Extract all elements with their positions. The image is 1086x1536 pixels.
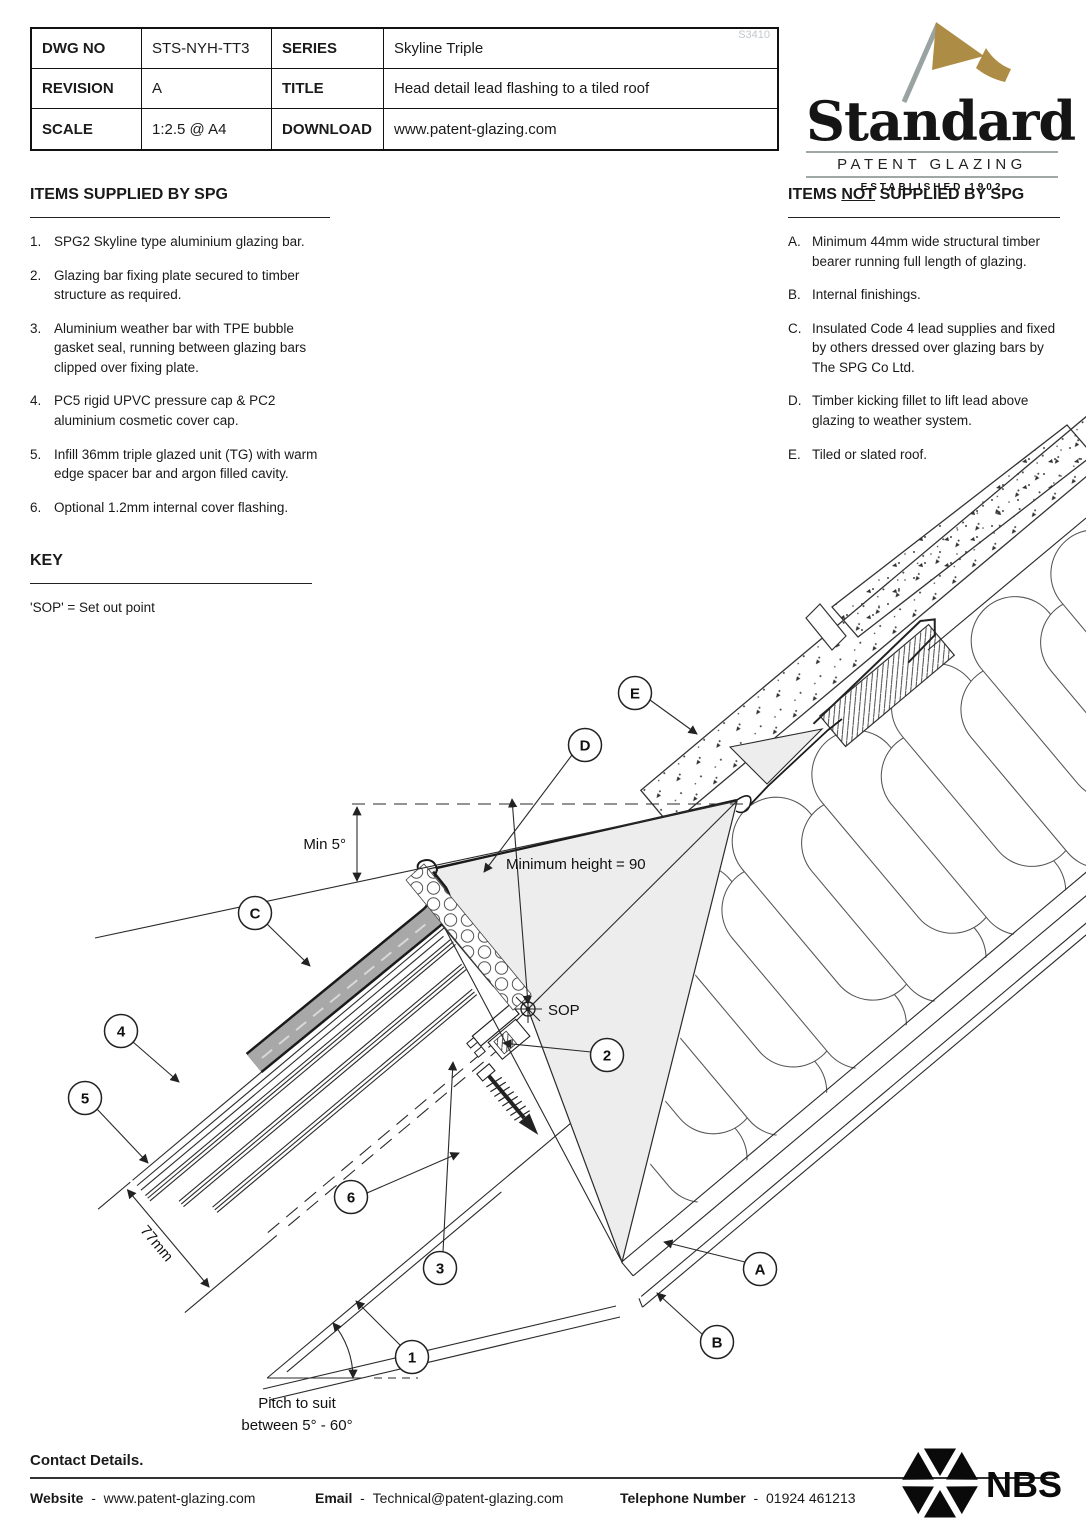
footer-phone: Telephone Number - 01924 461213 xyxy=(620,1490,856,1506)
revision-value: A xyxy=(142,69,272,109)
footer-email: Email - Technical@patent-glazing.com xyxy=(315,1490,563,1506)
title-block-table: DWG NO STS-NYH-TT3 SERIES Skyline Triple… xyxy=(30,27,779,151)
dwg-no-value: STS-NYH-TT3 xyxy=(142,29,272,69)
dimension-min5: Min 5° xyxy=(303,807,357,881)
dimension-77mm: 77mm xyxy=(98,1132,277,1313)
items-supplied-heading: ITEMS SUPPLIED BY SPG xyxy=(30,186,330,218)
download-label: DOWNLOAD xyxy=(272,109,384,149)
callout-4-label: 4 xyxy=(117,1023,126,1040)
pressure-cap xyxy=(133,922,449,1190)
scale-value: 1:2.5 @ A4 xyxy=(142,109,272,149)
items-not-supplied-heading: ITEMS NOT SUPPLIED BY SPG xyxy=(788,186,1060,218)
triple-glazed-unit xyxy=(133,919,498,1244)
footer-website: Website - www.patent-glazing.com xyxy=(30,1490,255,1506)
list-item: 2.Glazing bar fixing plate secured to ti… xyxy=(30,266,330,305)
callout-2-label: 2 xyxy=(603,1047,611,1064)
logo-wordmark: Standard xyxy=(806,94,1058,148)
list-item: A.Minimum 44mm wide structural timber be… xyxy=(788,232,1060,271)
pitch-text-1: Pitch to suit xyxy=(258,1395,336,1412)
fixing-plate-section xyxy=(466,1004,535,1070)
min-height-text: Minimum height = 90 xyxy=(506,856,646,873)
callout-3-label: 3 xyxy=(436,1260,444,1277)
detail-drawing: 77mm xyxy=(0,395,1086,1445)
pitch-annotation: Pitch to suit between 5° - 60° xyxy=(241,1323,418,1434)
callout-5-label: 5 xyxy=(81,1090,89,1107)
series-label: SERIES xyxy=(272,29,384,69)
sheet-watermark: S3410 xyxy=(700,29,770,41)
revision-label: REVISION xyxy=(32,69,142,109)
footer: Contact Details. Website - www.patent-gl… xyxy=(30,1452,1056,1512)
title-label: TITLE xyxy=(272,69,384,109)
callout-6-label: 6 xyxy=(347,1189,355,1206)
min5-text: Min 5° xyxy=(303,836,346,853)
ceiling-lines xyxy=(263,1306,620,1400)
callout-D-label: D xyxy=(580,737,591,754)
callout-C-label: C xyxy=(250,905,261,922)
list-item: B.Internal finishings. xyxy=(788,285,1060,305)
callout-1-label: 1 xyxy=(408,1349,416,1366)
callout-A-label: A xyxy=(755,1261,766,1278)
logo-subtitle: PATENT GLAZING xyxy=(806,156,1058,173)
logo-rule-bottom xyxy=(806,176,1058,178)
dim-77mm-text: 77mm xyxy=(137,1222,177,1265)
pitch-text-2: between 5° - 60° xyxy=(241,1417,352,1434)
glazing-bar-underside xyxy=(267,1097,607,1384)
list-item: C.Insulated Code 4 lead supplies and fix… xyxy=(788,319,1060,378)
company-logo: Standard PATENT GLAZING ESTABLISHED 1902 xyxy=(806,14,1058,193)
title-value: Head detail lead flashing to a tiled roo… xyxy=(384,69,777,109)
drawing-sheet: DWG NO STS-NYH-TT3 SERIES Skyline Triple… xyxy=(0,0,1086,1536)
nbs-text: NBS xyxy=(986,1464,1062,1505)
dwg-no-label: DWG NO xyxy=(32,29,142,69)
fixing-screw xyxy=(476,1063,545,1140)
sop-text: SOP xyxy=(548,1002,580,1019)
list-item: 1.SPG2 Skyline type aluminium glazing ba… xyxy=(30,232,330,252)
callout-B-label: B xyxy=(712,1334,723,1351)
nbs-logo: NBS xyxy=(898,1440,1068,1526)
scale-label: SCALE xyxy=(32,109,142,149)
callout-E-label: E xyxy=(630,685,640,702)
download-value: www.patent-glazing.com xyxy=(384,109,777,149)
list-item: 3.Aluminium weather bar with TPE bubble … xyxy=(30,319,330,378)
